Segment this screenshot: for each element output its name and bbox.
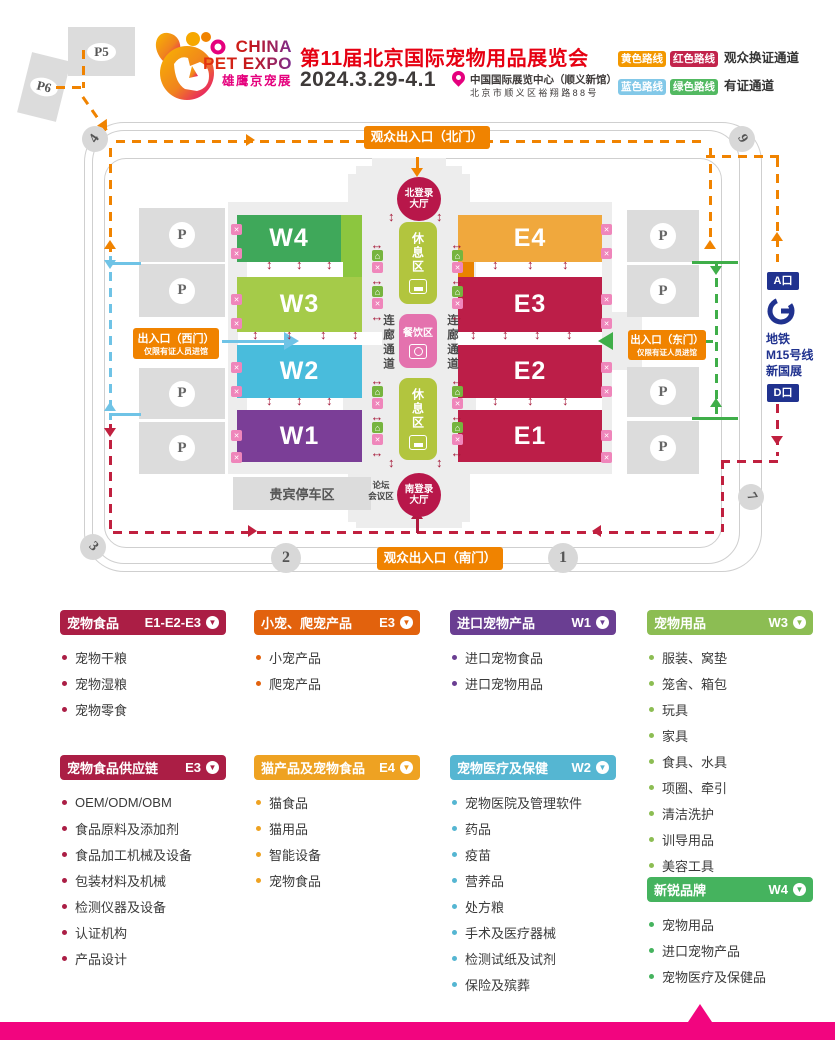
category-item: 玩具 <box>649 701 822 717</box>
chevron-down-icon: ▼ <box>793 883 806 896</box>
dining-area-label: 餐饮区 <box>403 324 433 339</box>
double-arrow-vertical-icon: ↕ <box>296 394 303 407</box>
category-item-label: 宠物医疗及保健品 <box>662 967 766 986</box>
category-item: 美容工具 <box>649 857 822 873</box>
hall-e4: E4 <box>458 215 602 262</box>
category-title: 进口宠物产品 <box>457 613 535 632</box>
hall-e2: E2 <box>458 345 602 398</box>
bullet-icon <box>452 800 457 805</box>
category-item-label: 玩具 <box>662 700 688 719</box>
venue-address: 北京市顺义区裕翔路88号 <box>470 86 599 99</box>
rest-area-south: 休息区 <box>399 378 437 460</box>
green-route <box>715 262 718 414</box>
category-item: 宠物食品 <box>256 872 429 888</box>
double-arrow-vertical-icon: ↕ <box>320 328 327 341</box>
category-item-label: 检测仪器及设备 <box>75 897 166 916</box>
yellow-route <box>776 158 779 262</box>
facility-cross-icon: ✕ <box>231 318 242 329</box>
category-item-label: 清洁洗护 <box>662 804 714 823</box>
double-arrow-horizontal-icon: ↔ <box>449 310 465 323</box>
category-item-label: 爬宠产品 <box>269 674 321 693</box>
bullet-icon <box>256 826 261 831</box>
category-item: 项圈、牵引 <box>649 779 822 795</box>
bullet-icon <box>62 655 67 660</box>
yellow-route <box>706 155 780 158</box>
bullet-icon <box>452 904 457 909</box>
category-item-label: 宠物干粮 <box>75 648 127 667</box>
south-lobby: 南登录 大厅 <box>397 473 441 517</box>
category-item-label: 宠物零食 <box>75 700 127 719</box>
category-header: 猫产品及宠物食品 E4 ▼ <box>254 755 420 780</box>
metro-logo-icon <box>766 296 796 326</box>
category-item: 保险及殡葬 <box>452 976 625 992</box>
forum-area: 论坛 会议区 <box>364 480 398 502</box>
chevron-down-icon: ▼ <box>596 761 609 774</box>
corridor-w-main <box>238 332 382 345</box>
category-header: 宠物用品 W3 ▼ <box>647 610 813 635</box>
double-arrow-horizontal-icon: ↔ <box>369 446 385 459</box>
category-items: 服装、窝垫笼舍、箱包玩具家具食具、水具项圈、牵引清洁洗护训导用品美容工具 <box>647 649 822 873</box>
legend-row2-label: 有证通道 <box>724 78 774 95</box>
category-item-label: 产品设计 <box>75 949 127 968</box>
category-item-label: 猫食品 <box>269 793 308 812</box>
category-item-label: 宠物用品 <box>662 915 714 934</box>
category-items: OEM/ODM/OBM食品原料及添加剂食品加工机械及设备包装材料及机械检测仪器及… <box>60 794 235 966</box>
facility-cross-icon: ✕ <box>452 434 463 445</box>
bullet-icon <box>256 655 261 660</box>
category-zone: W3 <box>769 615 789 630</box>
category-item: 进口宠物用品 <box>452 675 625 691</box>
category-item-label: 进口宠物食品 <box>465 648 543 667</box>
category-item: 食具、水具 <box>649 753 822 769</box>
double-arrow-horizontal-icon: ↔ <box>369 310 385 323</box>
bullet-icon <box>256 852 261 857</box>
category-zone: E1-E2-E3 <box>145 615 201 630</box>
bullet-icon <box>62 878 67 883</box>
category-item: 宠物干粮 <box>62 649 235 665</box>
parking-e1: P <box>627 210 699 262</box>
route-arrow <box>104 428 116 437</box>
facility-cross-icon: ✕ <box>372 298 383 309</box>
metro-label: 地铁 <box>766 330 790 347</box>
yellow-route <box>82 50 85 88</box>
category-item: 宠物医院及管理软件 <box>452 794 625 810</box>
double-arrow-vertical-icon: ↕ <box>502 328 509 341</box>
facility-cross-icon: ✕ <box>601 248 612 259</box>
legend-blue-route: 蓝色路线 <box>618 79 666 95</box>
parking-e3: P <box>627 367 699 417</box>
chevron-down-icon: ▼ <box>793 616 806 629</box>
category-zone: W4 <box>769 882 789 897</box>
category-item: 药品 <box>452 820 625 836</box>
category-item-label: 处方粮 <box>465 897 504 916</box>
category-title: 猫产品及宠物食品 <box>261 758 365 777</box>
facility-cross-icon: ✕ <box>601 294 612 305</box>
double-arrow-vertical-icon: ↕ <box>296 258 303 271</box>
green-route <box>692 417 738 420</box>
bullet-icon <box>649 759 654 764</box>
double-arrow-vertical-icon: ↕ <box>286 328 293 341</box>
category-item: 猫食品 <box>256 794 429 810</box>
category-title: 宠物医疗及保健 <box>457 758 548 777</box>
logo-wordmark: CHINA PET EXPO 雄鹰京宠展 <box>200 38 292 87</box>
route-arrow <box>771 436 783 445</box>
bullet-icon <box>649 863 654 868</box>
category-item: 手术及医疗器械 <box>452 924 625 940</box>
bullet-icon <box>452 655 457 660</box>
bench-icon <box>409 279 427 294</box>
bullet-icon <box>62 956 67 961</box>
bullet-icon <box>256 681 261 686</box>
category-item: 智能设备 <box>256 846 429 862</box>
bullet-icon <box>649 974 654 979</box>
double-arrow-vertical-icon: ↕ <box>534 328 541 341</box>
category-item: 小宠产品 <box>256 649 429 665</box>
legend-green-route: 绿色路线 <box>670 79 718 95</box>
category-item: 训导用品 <box>649 831 822 847</box>
blue-route <box>109 262 141 265</box>
west-gate-badge: 出入口（西门） 仅限有证人员进馆 <box>133 328 219 359</box>
double-arrow-vertical-icon: ↕ <box>252 328 259 341</box>
category-item-label: 保险及殡葬 <box>465 975 530 994</box>
category-item-label: 笼舍、箱包 <box>662 674 727 693</box>
category-items: 宠物医院及管理软件药品疫苗营养品处方粮手术及医疗器械检测试纸及试剂保险及殡葬 <box>450 794 625 992</box>
parking-w1: P <box>139 208 225 262</box>
category-header: 新锐品牌 W4 ▼ <box>647 877 813 902</box>
category-zone: E3 <box>185 760 201 775</box>
facility-cross-icon: ✕ <box>231 224 242 235</box>
south-entry-arrow <box>416 519 419 533</box>
category-title: 宠物食品 <box>67 613 119 632</box>
category-item: 食品加工机械及设备 <box>62 846 235 862</box>
category-item: 宠物医疗及保健品 <box>649 968 822 984</box>
category-small-reptile-pets: 小宠、爬宠产品 E3 ▼ 小宠产品爬宠产品 <box>254 610 429 701</box>
facility-cross-icon: ✕ <box>601 430 612 441</box>
metro-station: 新国展 <box>766 362 802 379</box>
rest-area-label: 休息区 <box>410 232 427 274</box>
category-item-label: 猫用品 <box>269 819 308 838</box>
facility-cross-icon: ✕ <box>231 248 242 259</box>
yellow-route <box>109 148 112 252</box>
category-items: 宠物用品进口宠物产品宠物医疗及保健品 <box>647 916 822 984</box>
bullet-icon <box>62 852 67 857</box>
parking-p-label: P <box>169 222 195 248</box>
location-pin-icon <box>449 68 467 86</box>
door-icon: ⌂ <box>452 250 463 261</box>
category-items: 进口宠物食品进口宠物用品 <box>450 649 625 691</box>
footer-peak <box>688 1004 712 1022</box>
parking-w3: P <box>139 368 225 419</box>
rest-area-north: 休息区 <box>399 222 437 304</box>
hall-w1: W1 <box>237 410 362 462</box>
east-entry-arrow <box>598 332 613 350</box>
bullet-icon <box>452 681 457 686</box>
hall-e3: E3 <box>458 277 602 332</box>
gate-2: 2 <box>271 543 301 573</box>
rest-area-label: 休息区 <box>410 388 427 430</box>
double-arrow-vertical-icon: ↕ <box>388 456 395 469</box>
category-item: 疫苗 <box>452 846 625 862</box>
double-arrow-vertical-icon: ↕ <box>436 210 443 223</box>
category-header: 小宠、爬宠产品 E3 ▼ <box>254 610 420 635</box>
category-cat-products: 猫产品及宠物食品 E4 ▼ 猫食品猫用品智能设备宠物食品 <box>254 755 429 898</box>
bullet-icon <box>649 948 654 953</box>
bullet-icon <box>649 811 654 816</box>
bullet-icon <box>649 655 654 660</box>
bullet-icon <box>649 922 654 927</box>
double-arrow-vertical-icon: ↕ <box>527 394 534 407</box>
category-item-label: 小宠产品 <box>269 648 321 667</box>
yellow-route <box>56 86 84 89</box>
door-icon: ⌂ <box>372 422 383 433</box>
route-arrow <box>104 240 116 249</box>
bullet-icon <box>62 681 67 686</box>
red-route <box>721 460 724 532</box>
category-item-label: 手术及医疗器械 <box>465 923 556 942</box>
logo-line-petexpo: PET EXPO <box>200 55 292 72</box>
category-imported-products: 进口宠物产品 W1 ▼ 进口宠物食品进口宠物用品 <box>450 610 625 701</box>
category-item: 包装材料及机械 <box>62 872 235 888</box>
bullet-icon <box>62 930 67 935</box>
category-item: 检测试纸及试剂 <box>452 950 625 966</box>
parking-w4: P <box>139 422 225 474</box>
metro-exit-d: D口 <box>767 384 799 402</box>
category-item-label: 美容工具 <box>662 856 714 875</box>
category-pet-supplies: 宠物用品 W3 ▼ 服装、窝垫笼舍、箱包玩具家具食具、水具项圈、牵引清洁洗护训导… <box>647 610 822 883</box>
double-arrow-vertical-icon: ↕ <box>492 394 499 407</box>
facility-cross-icon: ✕ <box>601 362 612 373</box>
route-arrow <box>710 266 722 275</box>
route-arrow <box>592 525 601 537</box>
hall-w4: W4 <box>237 215 341 262</box>
route-arrow <box>246 134 255 146</box>
logo-line-chinese: 雄鹰京宠展 <box>200 75 292 88</box>
category-zone: W1 <box>572 615 592 630</box>
venue-name: 中国国际展览中心（顺义新馆） <box>470 72 617 87</box>
bullet-icon <box>256 800 261 805</box>
double-arrow-vertical-icon: ↕ <box>388 210 395 223</box>
category-item-label: 宠物湿粮 <box>75 674 127 693</box>
category-item-label: 营养品 <box>465 871 504 890</box>
chevron-down-icon: ▼ <box>206 616 219 629</box>
category-item: 宠物用品 <box>649 916 822 932</box>
bullet-icon <box>649 681 654 686</box>
double-arrow-vertical-icon: ↕ <box>266 394 273 407</box>
blue-route <box>109 256 112 420</box>
category-item: 宠物零食 <box>62 701 235 717</box>
hall-w2: W2 <box>237 345 362 398</box>
category-item-label: 训导用品 <box>662 830 714 849</box>
south-gate-badge: 观众出入口（南门） <box>377 547 503 570</box>
bullet-icon <box>62 800 67 805</box>
category-zone: E3 <box>379 615 395 630</box>
facility-cross-icon: ✕ <box>372 262 383 273</box>
category-items: 猫食品猫用品智能设备宠物食品 <box>254 794 429 888</box>
category-items: 宠物干粮宠物湿粮宠物零食 <box>60 649 235 717</box>
route-arrow <box>411 168 423 177</box>
category-item-label: 认证机构 <box>75 923 127 942</box>
red-route <box>109 424 112 532</box>
chevron-down-icon: ▼ <box>400 616 413 629</box>
bullet-icon <box>62 826 67 831</box>
green-route <box>692 261 738 264</box>
legend-row1-label: 观众换证通道 <box>724 50 799 67</box>
category-header: 宠物医疗及保健 W2 ▼ <box>450 755 616 780</box>
double-arrow-vertical-icon: ↕ <box>326 258 333 271</box>
facility-cross-icon: ✕ <box>601 224 612 235</box>
hall-e1: E1 <box>458 410 602 462</box>
double-arrow-vertical-icon: ↕ <box>352 328 359 341</box>
bullet-icon <box>62 904 67 909</box>
category-item: 营养品 <box>452 872 625 888</box>
hall-w4-annex <box>340 215 362 277</box>
facility-cross-icon: ✕ <box>231 452 242 463</box>
category-item-label: 疫苗 <box>465 845 491 864</box>
category-item-label: 食品原料及添加剂 <box>75 819 179 838</box>
category-item: 认证机构 <box>62 924 235 940</box>
facility-cross-icon: ✕ <box>231 386 242 397</box>
category-item: 笼舍、箱包 <box>649 675 822 691</box>
category-item-label: 食具、水具 <box>662 752 727 771</box>
category-new-brands: 新锐品牌 W4 ▼ 宠物用品进口宠物产品宠物医疗及保健品 <box>647 877 822 994</box>
route-arrow <box>248 525 257 537</box>
north-gate-badge: 观众出入口（北门） <box>364 126 490 149</box>
category-item-label: 进口宠物用品 <box>465 674 543 693</box>
bullet-icon <box>452 930 457 935</box>
double-arrow-vertical-icon: ↕ <box>266 258 273 271</box>
east-gate-badge: 出入口（东门） 仅限有证人员进馆 <box>628 330 706 360</box>
parking-w2: P <box>139 264 225 317</box>
chevron-down-icon: ▼ <box>596 616 609 629</box>
double-arrow-vertical-icon: ↕ <box>562 394 569 407</box>
parking-e4: P <box>627 421 699 474</box>
page-title: 第11届北京国际宠物用品展览会 <box>300 42 589 71</box>
legend-red-route: 红色路线 <box>670 51 718 67</box>
north-lobby: 北登录 大厅 <box>397 177 441 221</box>
facility-cross-icon: ✕ <box>231 294 242 305</box>
category-item: OEM/ODM/OBM <box>62 794 235 810</box>
category-header: 进口宠物产品 W1 ▼ <box>450 610 616 635</box>
door-icon: ⌂ <box>452 386 463 397</box>
category-item-label: 药品 <box>465 819 491 838</box>
chevron-down-icon: ▼ <box>206 761 219 774</box>
bullet-icon <box>649 785 654 790</box>
facility-cross-icon: ✕ <box>601 452 612 463</box>
category-item: 处方粮 <box>452 898 625 914</box>
double-arrow-vertical-icon: ↕ <box>562 258 569 271</box>
route-arrow <box>104 402 116 411</box>
parking-p5: P5 <box>68 27 135 76</box>
category-title: 宠物用品 <box>654 613 706 632</box>
category-supply-chain: 宠物食品供应链 E3 ▼ OEM/ODM/OBM食品原料及添加剂食品加工机械及设… <box>60 755 235 976</box>
metro-exit-a: A口 <box>767 272 799 290</box>
category-header: 宠物食品供应链 E3 ▼ <box>60 755 226 780</box>
bench-icon <box>409 435 427 450</box>
facility-cross-icon: ✕ <box>601 318 612 329</box>
double-arrow-vertical-icon: ↕ <box>326 394 333 407</box>
category-item-label: 检测试纸及试剂 <box>465 949 556 968</box>
route-arrow <box>710 398 722 407</box>
category-item: 猫用品 <box>256 820 429 836</box>
yellow-route <box>709 148 712 248</box>
double-arrow-vertical-icon: ↕ <box>436 456 443 469</box>
route-arrow <box>771 232 783 241</box>
category-item: 食品原料及添加剂 <box>62 820 235 836</box>
blue-route <box>109 413 141 416</box>
facility-cross-icon: ✕ <box>452 298 463 309</box>
double-arrow-vertical-icon: ↕ <box>527 258 534 271</box>
bullet-icon <box>452 956 457 961</box>
category-item: 家具 <box>649 727 822 743</box>
category-item-label: 智能设备 <box>269 845 321 864</box>
red-route <box>721 460 781 463</box>
bullet-icon <box>62 707 67 712</box>
bullet-icon <box>452 826 457 831</box>
category-zone: E4 <box>379 760 395 775</box>
category-item-label: 进口宠物产品 <box>662 941 740 960</box>
facility-cross-icon: ✕ <box>231 430 242 441</box>
category-item-label: OEM/ODM/OBM <box>75 795 172 810</box>
category-item-label: 服装、窝垫 <box>662 648 727 667</box>
category-item: 爬宠产品 <box>256 675 429 691</box>
gate-1: 1 <box>548 543 578 573</box>
chevron-down-icon: ▼ <box>400 761 413 774</box>
door-icon: ⌂ <box>452 422 463 433</box>
logo-line-china: CHINA <box>200 38 292 55</box>
bullet-icon <box>452 878 457 883</box>
double-arrow-vertical-icon: ↕ <box>470 328 477 341</box>
corridor-e-main <box>456 332 602 345</box>
category-item: 检测仪器及设备 <box>62 898 235 914</box>
category-item-label: 家具 <box>662 726 688 745</box>
bullet-icon <box>256 878 261 883</box>
double-arrow-vertical-icon: ↕ <box>492 258 499 271</box>
category-item: 宠物湿粮 <box>62 675 235 691</box>
category-item-label: 食品加工机械及设备 <box>75 845 192 864</box>
parking-e2: P <box>627 265 699 317</box>
category-item-label: 项圈、牵引 <box>662 778 727 797</box>
category-pet-food: 宠物食品 E1-E2-E3 ▼ 宠物干粮宠物湿粮宠物零食 <box>60 610 235 727</box>
door-icon: ⌂ <box>372 386 383 397</box>
category-item: 清洁洗护 <box>649 805 822 821</box>
category-item: 服装、窝垫 <box>649 649 822 665</box>
facility-cross-icon: ✕ <box>372 398 383 409</box>
facility-cross-icon: ✕ <box>372 434 383 445</box>
legend-yellow-route: 黄色路线 <box>618 51 666 67</box>
category-medical-health: 宠物医疗及保健 W2 ▼ 宠物医院及管理软件药品疫苗营养品处方粮手术及医疗器械检… <box>450 755 625 1002</box>
route-arrow <box>704 240 716 249</box>
door-icon: ⌂ <box>452 286 463 297</box>
double-arrow-horizontal-icon: ↔ <box>449 446 465 459</box>
category-title: 小宠、爬宠产品 <box>261 613 352 632</box>
category-item-label: 包装材料及机械 <box>75 871 166 890</box>
door-icon: ⌂ <box>372 286 383 297</box>
facility-cross-icon: ✕ <box>452 398 463 409</box>
footer-bar <box>0 1022 835 1040</box>
category-title: 新锐品牌 <box>654 880 706 899</box>
category-item-label: 宠物医院及管理软件 <box>465 793 582 812</box>
bullet-icon <box>649 733 654 738</box>
bullet-icon <box>649 707 654 712</box>
category-title: 宠物食品供应链 <box>67 758 158 777</box>
category-item-label: 宠物食品 <box>269 871 321 890</box>
vip-parking: 贵宾停车区 <box>233 477 371 510</box>
category-item: 进口宠物食品 <box>452 649 625 665</box>
plate-icon <box>409 344 427 359</box>
category-item: 进口宠物产品 <box>649 942 822 958</box>
metro-line: M15号线 <box>766 346 813 363</box>
category-zone: W2 <box>572 760 592 775</box>
